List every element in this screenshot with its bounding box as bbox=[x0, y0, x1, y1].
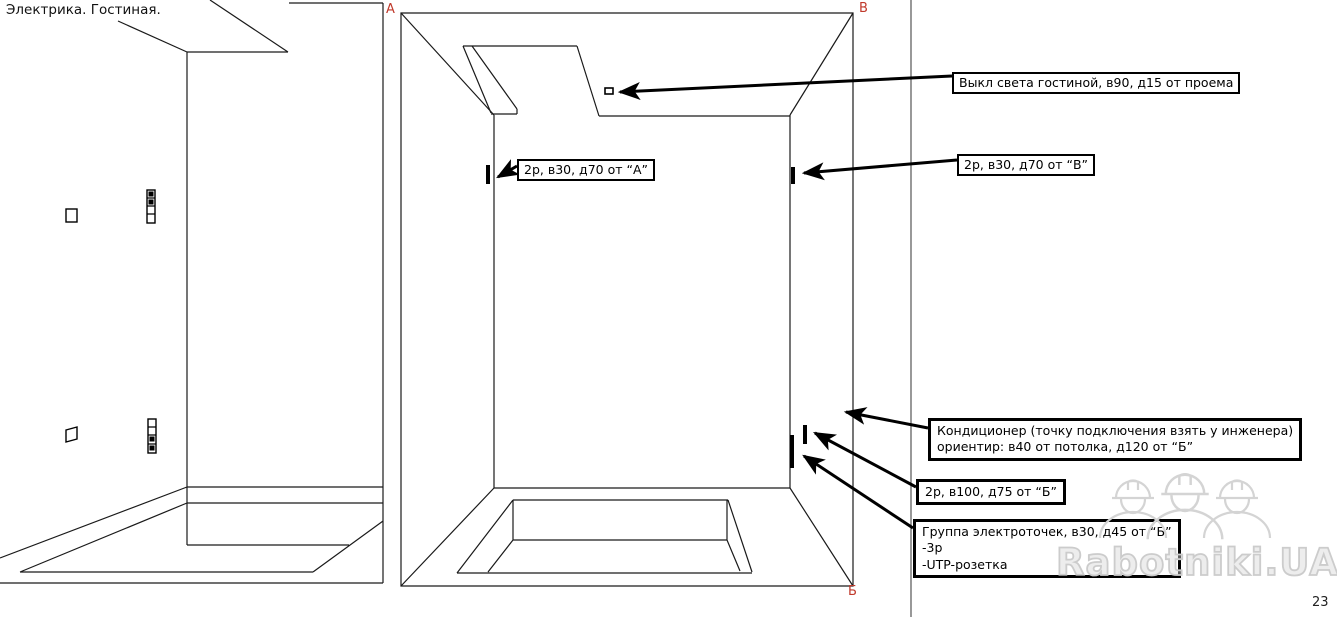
watermark-figures bbox=[0, 0, 1337, 617]
hard-hat-worker-icon bbox=[1204, 480, 1270, 538]
hard-hat-worker-icon bbox=[1100, 480, 1166, 538]
drawing-sheet: Электрика. Гостиная. А В Б Выкл света го… bbox=[0, 0, 1337, 617]
watermark-text: Rabotniki.UA bbox=[1056, 541, 1337, 584]
hard-hat-worker-icon bbox=[1148, 474, 1223, 539]
